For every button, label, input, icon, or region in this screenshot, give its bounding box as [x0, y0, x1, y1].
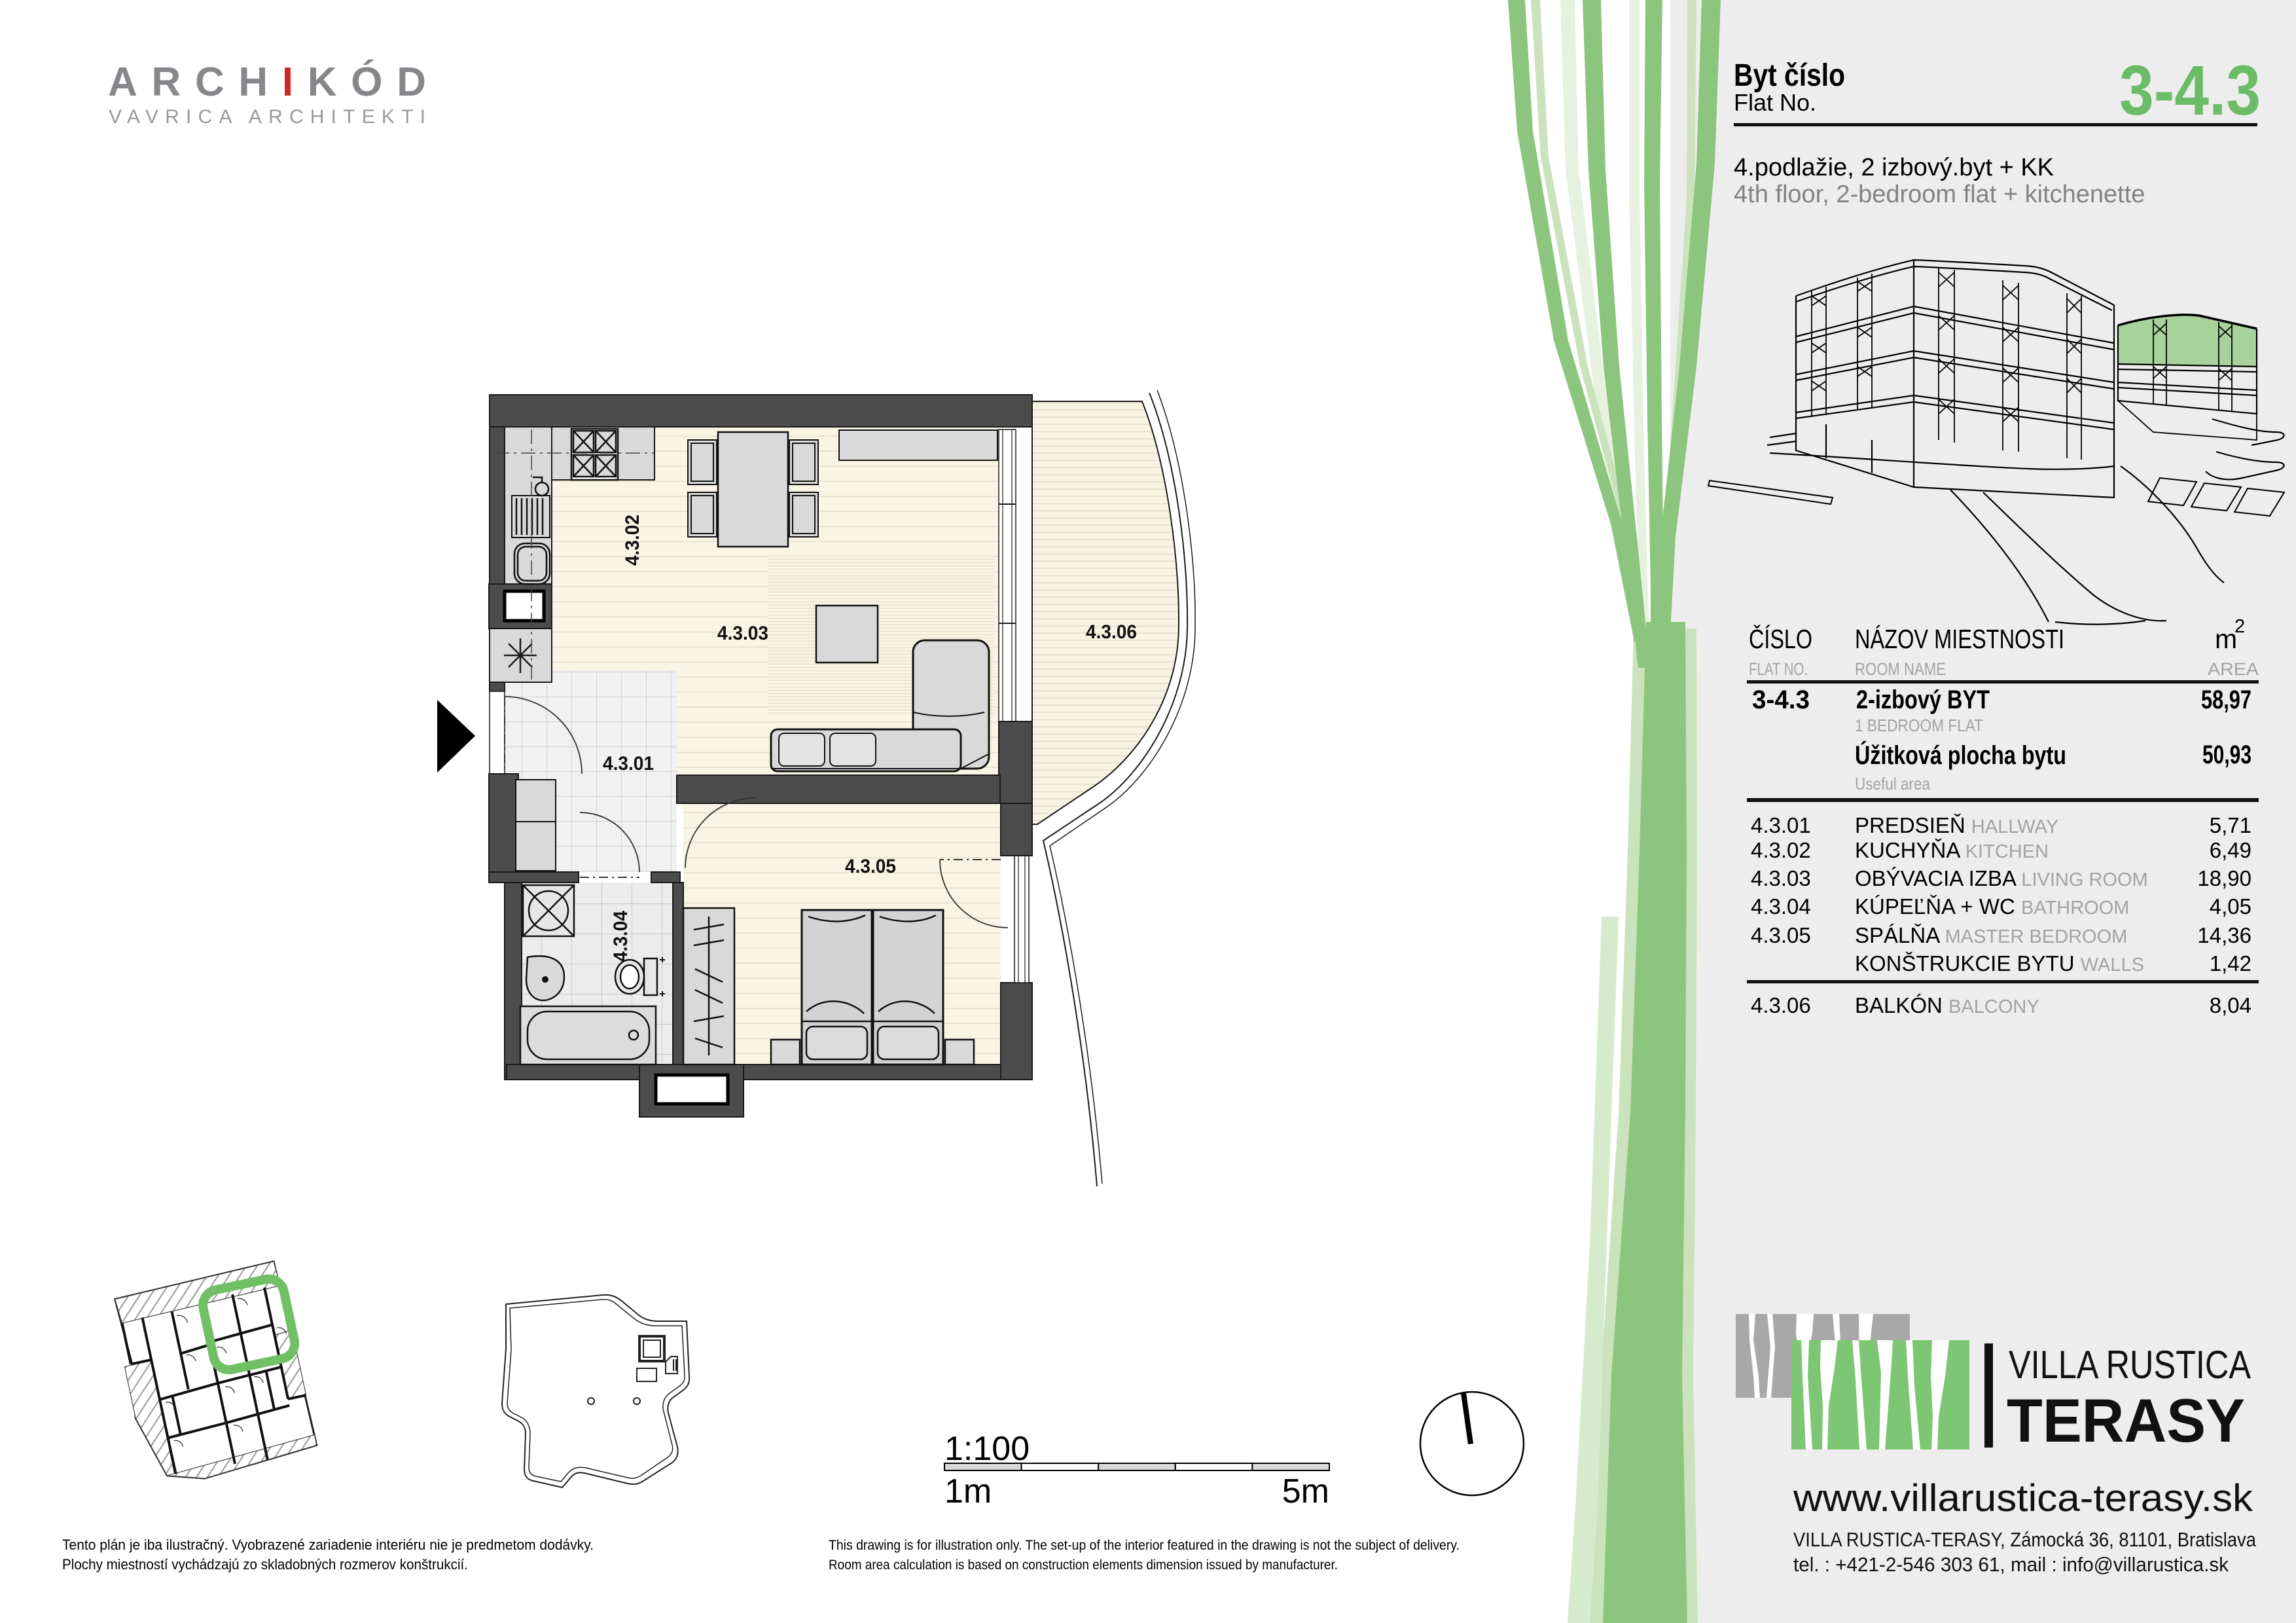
svg-text:4.3.03: 4.3.03 [717, 623, 768, 644]
svg-text:1:100: 1:100 [944, 1430, 1030, 1468]
svg-text:Useful area: Useful area [1855, 774, 1930, 793]
svg-text:www.villarustica-terasy.sk: www.villarustica-terasy.sk [1793, 1477, 2253, 1520]
svg-text:2-izbový BYT: 2-izbový BYT [1856, 685, 1990, 714]
svg-text:4th floor, 2-bedroom flat + ki: 4th floor, 2-bedroom flat + kitchenette [1734, 181, 2145, 208]
svg-text:PREDSIEŇ HALLWAY: PREDSIEŇ HALLWAY [1855, 813, 2058, 837]
svg-text:14,36: 14,36 [2197, 923, 2251, 947]
svg-text:1m: 1m [944, 1472, 992, 1510]
svg-text:4.3.05: 4.3.05 [1751, 923, 1811, 947]
svg-text:VILLA RUSTICA-TERASY, Zámocká: VILLA RUSTICA-TERASY, Zámocká 36, 81101,… [1793, 1528, 2257, 1551]
svg-text:Úžitková plocha bytu: Úžitková plocha bytu [1855, 740, 2066, 770]
svg-text:Plochy miestností vychádzajú z: Plochy miestností vychádzajú zo skladobn… [62, 1556, 468, 1573]
svg-text:BALKÓN BALCONY: BALKÓN BALCONY [1855, 993, 2039, 1017]
svg-text:tel. : +421-2-546 303 61, mail: tel. : +421-2-546 303 61, mail : info@vi… [1793, 1553, 2229, 1576]
svg-text:Tento plán je iba ilustračný.: Tento plán je iba ilustračný. Vyobrazené… [62, 1537, 594, 1553]
svg-text:8,04: 8,04 [2210, 993, 2251, 1017]
svg-text:4.3.01: 4.3.01 [603, 753, 654, 775]
svg-text:4.3.02: 4.3.02 [1751, 838, 1811, 862]
svg-text:4.3.03: 4.3.03 [1751, 866, 1811, 890]
svg-text:4,05: 4,05 [2210, 894, 2251, 919]
svg-text:TERASY: TERASY [2007, 1386, 2245, 1455]
svg-text:58,97: 58,97 [2201, 685, 2251, 714]
svg-text:4.3.01: 4.3.01 [1751, 813, 1811, 837]
svg-text:4.3.05: 4.3.05 [845, 856, 896, 877]
svg-text:1,42: 1,42 [2210, 951, 2251, 976]
svg-text:OBÝVACIA IZBA LIVING ROOM: OBÝVACIA IZBA LIVING ROOM [1855, 866, 2148, 890]
svg-text:4.3.04: 4.3.04 [1751, 894, 1811, 919]
svg-text:AREA: AREA [2208, 659, 2259, 679]
svg-text:ROOM NAME: ROOM NAME [1855, 659, 1946, 679]
svg-text:1 BEDROOM FLAT: 1 BEDROOM FLAT [1855, 716, 1983, 735]
svg-text:4.3.06: 4.3.06 [1086, 621, 1137, 643]
svg-text:SPÁLŇA MASTER BEDROOM: SPÁLŇA MASTER BEDROOM [1855, 923, 2127, 947]
svg-text:KUCHYŇA KITCHEN: KUCHYŇA KITCHEN [1855, 838, 2049, 862]
svg-text:FLAT NO.: FLAT NO. [1749, 659, 1808, 679]
svg-text:5m: 5m [1282, 1472, 1329, 1510]
svg-text:VILLA RUSTICA: VILLA RUSTICA [2009, 1343, 2251, 1387]
svg-text:KONŠTRUKCIE BYTU WALLS: KONŠTRUKCIE BYTU WALLS [1855, 951, 2144, 976]
svg-text:6,49: 6,49 [2210, 838, 2251, 862]
svg-text:NÁZOV MIESTNOSTI: NÁZOV MIESTNOSTI [1855, 624, 2064, 654]
svg-text:This drawing is for illustrati: This drawing is for illustration only. T… [829, 1538, 1460, 1553]
svg-text:ČÍSLO: ČÍSLO [1749, 624, 1812, 654]
svg-text:Room area calculation is based: Room area calculation is based on constr… [829, 1558, 1338, 1573]
svg-text:5,71: 5,71 [2210, 813, 2251, 837]
svg-text:50,93: 50,93 [2202, 740, 2251, 769]
svg-text:3-4.3: 3-4.3 [2119, 50, 2261, 130]
svg-text:ARCHIKÓD: ARCHIKÓD [108, 60, 426, 105]
svg-text:4.3.02: 4.3.02 [622, 515, 643, 566]
svg-text:Byt číslo: Byt číslo [1734, 58, 1845, 93]
svg-text:4.podlažie, 2 izbový.byt + KK: 4.podlažie, 2 izbový.byt + KK [1734, 154, 2054, 181]
svg-text:3-4.3: 3-4.3 [1752, 685, 1810, 714]
svg-text:4.3.06: 4.3.06 [1751, 993, 1811, 1017]
svg-text:KÚPEĽŇA + WC BATHROOM: KÚPEĽŇA + WC BATHROOM [1855, 894, 2129, 919]
svg-text:18,90: 18,90 [2197, 866, 2251, 890]
svg-text:2: 2 [2234, 616, 2245, 637]
svg-text:4.3.04: 4.3.04 [610, 911, 632, 962]
svg-text:Flat No.: Flat No. [1734, 89, 1816, 116]
